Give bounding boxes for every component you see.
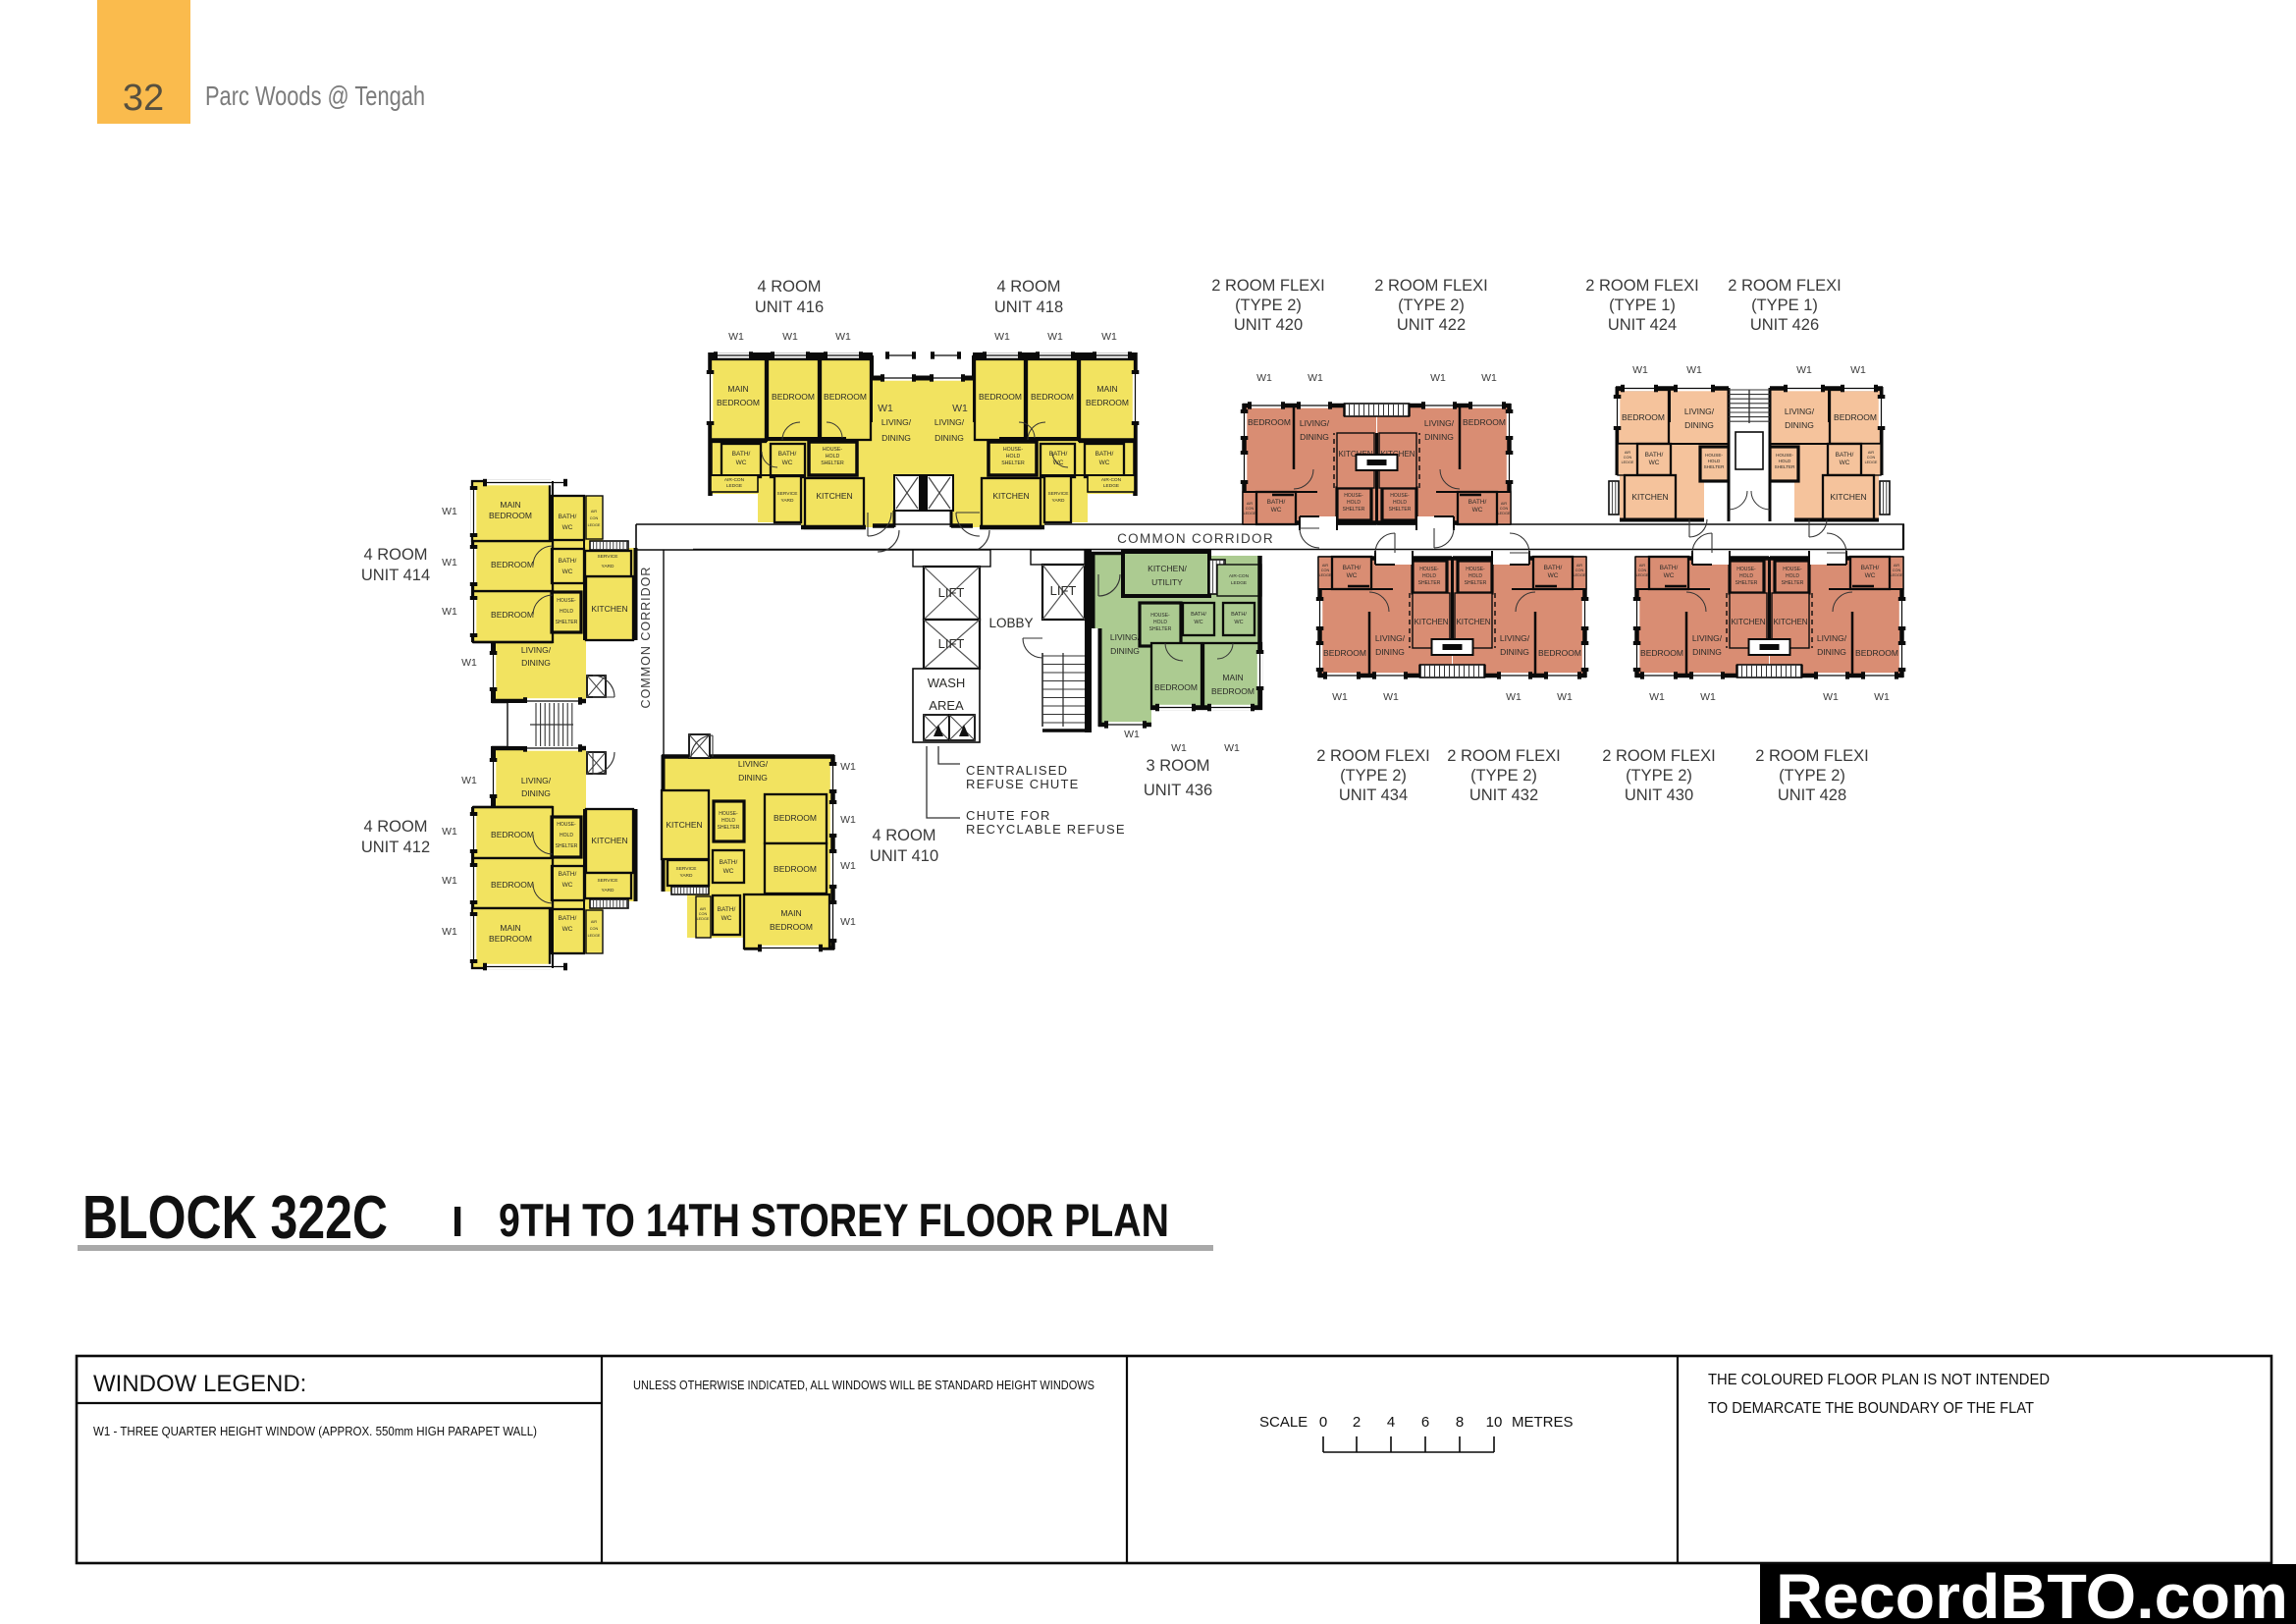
svg-text:LIVING/: LIVING/ (521, 645, 552, 655)
svg-text:W1: W1 (1850, 364, 1866, 376)
svg-text:DINING: DINING (1684, 420, 1714, 430)
svg-text:LEDGE: LEDGE (1891, 573, 1903, 577)
svg-text:W1: W1 (1383, 691, 1399, 703)
svg-text:BEDROOM: BEDROOM (491, 830, 534, 839)
svg-text:YARD: YARD (781, 498, 795, 504)
svg-text:HOLD: HOLD (1393, 500, 1407, 506)
svg-text:LIVING/: LIVING/ (1692, 633, 1723, 643)
svg-text:BEDROOM: BEDROOM (1248, 417, 1291, 427)
svg-text:W1: W1 (1686, 364, 1702, 376)
svg-text:CON: CON (1867, 456, 1876, 460)
svg-text:LEDGE: LEDGE (1622, 460, 1634, 464)
svg-text:SHELTER: SHELTER (1343, 507, 1365, 513)
svg-text:LIVING/: LIVING/ (1785, 406, 1815, 416)
svg-text:BEDROOM: BEDROOM (489, 934, 532, 944)
svg-text:KITCHEN: KITCHEN (816, 491, 852, 501)
svg-text:DINING: DINING (1424, 432, 1454, 442)
svg-text:2 ROOM FLEXI: 2 ROOM FLEXI (1755, 747, 1869, 765)
svg-text:BATH/: BATH/ (1231, 612, 1247, 618)
svg-text:SHELTER: SHELTER (1418, 580, 1441, 586)
svg-text:DINING: DINING (1110, 646, 1140, 656)
svg-text:YARD: YARD (680, 873, 694, 879)
svg-text:I: I (452, 1198, 463, 1246)
svg-text:LEDGE: LEDGE (697, 917, 710, 921)
svg-text:BATH/: BATH/ (559, 915, 577, 922)
svg-text:LEDGE: LEDGE (1865, 460, 1878, 464)
svg-text:2 ROOM FLEXI: 2 ROOM FLEXI (1316, 747, 1430, 765)
svg-text:KITCHEN: KITCHEN (1631, 492, 1668, 502)
svg-text:W1: W1 (1506, 691, 1522, 703)
svg-text:BEDROOM: BEDROOM (1855, 648, 1898, 658)
svg-text:SERVICE: SERVICE (1048, 491, 1069, 497)
svg-text:BEDROOM: BEDROOM (1834, 412, 1877, 422)
svg-text:Parc Woods @ Tengah: Parc Woods @ Tengah (205, 81, 425, 111)
svg-text:KITCHEN: KITCHEN (1773, 618, 1807, 626)
svg-text:4 ROOM: 4 ROOM (363, 818, 427, 836)
svg-text:CENTRALISED: CENTRALISED (966, 763, 1068, 778)
svg-text:W1: W1 (835, 331, 851, 343)
svg-text:YARD: YARD (602, 888, 615, 893)
svg-text:W1: W1 (840, 761, 856, 773)
svg-text:LEDGE: LEDGE (588, 523, 601, 527)
svg-text:CON: CON (1575, 568, 1584, 572)
svg-text:HOLD: HOLD (1786, 573, 1799, 579)
svg-text:8: 8 (1456, 1414, 1464, 1431)
svg-text:BATH/: BATH/ (1836, 452, 1854, 459)
svg-text:UNIT 414: UNIT 414 (361, 567, 430, 584)
svg-text:HOLD: HOLD (826, 454, 840, 460)
svg-text:HOUSE-: HOUSE- (1736, 567, 1756, 572)
svg-text:CON: CON (1246, 507, 1255, 511)
svg-text:W1: W1 (1481, 372, 1497, 384)
svg-text:WC: WC (1234, 620, 1243, 625)
svg-text:4 ROOM: 4 ROOM (996, 278, 1060, 296)
svg-text:HOUSE-: HOUSE- (1390, 493, 1410, 499)
svg-text:UNIT 430: UNIT 430 (1625, 786, 1693, 804)
svg-text:AIR: AIR (591, 920, 598, 924)
svg-text:BATH/: BATH/ (559, 558, 577, 565)
svg-text:WINDOW LEGEND:: WINDOW LEGEND: (93, 1371, 306, 1397)
svg-text:(TYPE 2): (TYPE 2) (1340, 767, 1407, 785)
svg-text:KITCHEN: KITCHEN (1456, 618, 1490, 626)
svg-text:LEDGE: LEDGE (1574, 573, 1586, 577)
svg-text:BATH/: BATH/ (1095, 451, 1114, 458)
svg-text:WC: WC (1840, 460, 1850, 466)
svg-text:LEDGE: LEDGE (588, 934, 601, 938)
svg-text:LEDGE: LEDGE (1498, 512, 1511, 515)
svg-text:AIR: AIR (1868, 451, 1875, 455)
svg-text:BATH/: BATH/ (559, 871, 577, 878)
svg-text:LIVING/: LIVING/ (1424, 418, 1455, 428)
svg-text:W1: W1 (1256, 372, 1272, 384)
svg-text:W1: W1 (840, 860, 856, 872)
svg-text:CON: CON (699, 912, 708, 916)
svg-text:SERVICE: SERVICE (598, 554, 618, 560)
svg-text:DINING: DINING (521, 658, 551, 668)
svg-text:UNIT 420: UNIT 420 (1234, 316, 1303, 334)
svg-text:LEDGE: LEDGE (1244, 512, 1256, 515)
svg-text:SHELTER: SHELTER (1001, 460, 1025, 466)
svg-text:2 ROOM FLEXI: 2 ROOM FLEXI (1374, 277, 1488, 295)
svg-text:HOLD: HOLD (1422, 573, 1436, 579)
svg-text:SHELTER: SHELTER (1704, 464, 1726, 469)
svg-text:BATH/: BATH/ (720, 859, 738, 866)
svg-text:WC: WC (1099, 460, 1110, 466)
svg-text:DINING: DINING (1817, 647, 1846, 657)
svg-text:(TYPE 1): (TYPE 1) (1751, 297, 1818, 314)
svg-text:W1: W1 (1823, 691, 1839, 703)
svg-text:UNIT 422: UNIT 422 (1397, 316, 1466, 334)
svg-text:BEDROOM: BEDROOM (774, 864, 817, 874)
svg-text:HOLD: HOLD (1708, 459, 1721, 463)
svg-text:BATH/: BATH/ (1544, 565, 1563, 571)
svg-text:BEDROOM: BEDROOM (824, 392, 867, 402)
svg-text:LIFT: LIFT (1050, 583, 1077, 598)
svg-text:WC: WC (782, 460, 793, 466)
svg-text:BATH/: BATH/ (778, 451, 797, 458)
svg-text:W1: W1 (1557, 691, 1573, 703)
svg-text:HOUSE-: HOUSE- (1705, 453, 1723, 458)
svg-text:BLOCK 322C: BLOCK 322C (82, 1184, 388, 1252)
svg-text:W1: W1 (1874, 691, 1890, 703)
svg-text:METRES: METRES (1512, 1414, 1574, 1431)
svg-text:W1: W1 (442, 875, 457, 887)
svg-text:UNIT 410: UNIT 410 (870, 847, 938, 865)
svg-text:W1: W1 (442, 557, 457, 568)
svg-text:W1: W1 (442, 926, 457, 938)
svg-text:DINING: DINING (521, 788, 551, 798)
svg-text:HOLD: HOLD (560, 833, 573, 839)
svg-text:BEDROOM: BEDROOM (1086, 398, 1129, 407)
svg-text:LEDGE: LEDGE (1636, 573, 1649, 577)
svg-text:AIR-CON: AIR-CON (1101, 477, 1122, 483)
svg-text:W1: W1 (461, 657, 477, 669)
svg-text:BATH/: BATH/ (1267, 499, 1286, 506)
svg-text:W1: W1 (461, 775, 477, 786)
svg-text:MAIN: MAIN (500, 923, 520, 933)
svg-text:BATH/: BATH/ (1191, 612, 1206, 618)
svg-text:DINING: DINING (881, 433, 911, 443)
svg-text:AIR-CON: AIR-CON (1229, 573, 1250, 579)
svg-text:SHELTER: SHELTER (1735, 580, 1758, 586)
svg-text:LEDGE: LEDGE (1319, 573, 1332, 577)
svg-text:WC: WC (562, 882, 573, 889)
svg-text:SHELTER: SHELTER (718, 825, 740, 831)
svg-text:W1: W1 (442, 506, 457, 517)
svg-text:HOUSE-: HOUSE- (1150, 613, 1170, 619)
svg-text:W1: W1 (1332, 691, 1348, 703)
svg-text:BEDROOM: BEDROOM (1622, 412, 1665, 422)
svg-text:TO DEMARCATE THE BOUNDARY OF T: TO DEMARCATE THE BOUNDARY OF THE FLAT (1708, 1400, 2034, 1417)
svg-text:UNLESS OTHERWISE INDICATED, A: UNLESS OTHERWISE INDICATED, ALL WINDOWS … (633, 1379, 1095, 1392)
svg-text:AIR: AIR (1639, 564, 1646, 568)
svg-text:WC: WC (562, 568, 573, 575)
svg-text:YARD: YARD (1052, 498, 1066, 504)
svg-text:COMMON CORRIDOR: COMMON CORRIDOR (1117, 531, 1274, 546)
svg-text:HOLD: HOLD (1739, 573, 1753, 579)
svg-text:UNIT 436: UNIT 436 (1144, 782, 1212, 799)
svg-text:BATH/: BATH/ (1645, 452, 1664, 459)
svg-text:WC: WC (562, 926, 573, 933)
svg-text:WC: WC (1649, 460, 1660, 466)
svg-text:W1: W1 (878, 403, 893, 414)
svg-text:LIVING/: LIVING/ (1375, 633, 1406, 643)
svg-text:2 ROOM FLEXI: 2 ROOM FLEXI (1447, 747, 1561, 765)
svg-text:LIVING/: LIVING/ (1500, 633, 1530, 643)
svg-text:LOBBY: LOBBY (988, 616, 1033, 630)
svg-text:4 ROOM: 4 ROOM (363, 546, 427, 564)
svg-text:6: 6 (1421, 1414, 1429, 1431)
svg-text:W1: W1 (1796, 364, 1812, 376)
svg-text:UNIT 424: UNIT 424 (1608, 316, 1677, 334)
svg-text:LEDGE: LEDGE (1103, 483, 1119, 489)
svg-text:SHELTER: SHELTER (1149, 626, 1172, 632)
svg-text:4 ROOM: 4 ROOM (757, 278, 821, 296)
svg-text:4 ROOM: 4 ROOM (872, 827, 935, 844)
svg-text:HOUSE-: HOUSE- (557, 598, 576, 604)
svg-text:MAIN: MAIN (727, 384, 748, 394)
svg-text:HOUSE-: HOUSE- (1466, 567, 1485, 572)
svg-text:RecordBTO.com: RecordBTO.com (1776, 1561, 2288, 1624)
svg-text:REFUSE CHUTE: REFUSE CHUTE (966, 777, 1080, 791)
svg-text:W1: W1 (840, 814, 856, 826)
svg-text:BEDROOM: BEDROOM (1154, 682, 1198, 692)
svg-text:RECYCLABLE REFUSE: RECYCLABLE REFUSE (966, 822, 1126, 837)
svg-text:HOUSE-: HOUSE- (719, 811, 738, 817)
svg-text:AIR: AIR (1501, 502, 1508, 506)
svg-text:HOLD: HOLD (721, 818, 735, 824)
svg-text:WC: WC (1194, 620, 1202, 625)
svg-text:W1: W1 (1101, 331, 1117, 343)
svg-text:HOUSE-: HOUSE- (1344, 493, 1363, 499)
svg-text:UNIT 416: UNIT 416 (755, 298, 824, 316)
svg-text:KITCHEN/: KITCHEN/ (1148, 564, 1187, 573)
svg-text:WC: WC (736, 460, 747, 466)
svg-text:2 ROOM FLEXI: 2 ROOM FLEXI (1728, 277, 1842, 295)
svg-text:DINING: DINING (1785, 420, 1814, 430)
svg-text:AIR: AIR (1247, 502, 1254, 506)
svg-text:SHELTER: SHELTER (1465, 580, 1487, 586)
svg-text:(TYPE 2): (TYPE 2) (1626, 767, 1692, 785)
svg-text:BEDROOM: BEDROOM (770, 922, 813, 932)
svg-text:DINING: DINING (934, 433, 964, 443)
svg-text:LEDGE: LEDGE (1231, 580, 1247, 586)
svg-text:LIFT: LIFT (938, 585, 965, 600)
svg-text:4: 4 (1387, 1414, 1395, 1431)
svg-text:BATH/: BATH/ (1861, 565, 1880, 571)
svg-text:SERVICE: SERVICE (676, 866, 697, 872)
svg-text:W1: W1 (1700, 691, 1716, 703)
svg-text:BEDROOM: BEDROOM (491, 560, 534, 569)
svg-text:HOLD: HOLD (1779, 459, 1791, 463)
svg-text:WC: WC (1347, 572, 1358, 579)
svg-text:UTILITY: UTILITY (1151, 577, 1183, 587)
svg-text:3 ROOM: 3 ROOM (1146, 757, 1209, 775)
svg-text:BATH/: BATH/ (718, 906, 736, 913)
svg-text:W1: W1 (1430, 372, 1446, 384)
svg-text:(TYPE 2): (TYPE 2) (1470, 767, 1537, 785)
svg-text:LIVING/: LIVING/ (934, 417, 965, 427)
svg-text:BEDROOM: BEDROOM (1031, 392, 1074, 402)
svg-text:W1: W1 (1047, 331, 1063, 343)
svg-text:WC: WC (1664, 572, 1675, 579)
svg-text:COMMON CORRIDOR: COMMON CORRIDOR (639, 567, 653, 709)
svg-text:BEDROOM: BEDROOM (1323, 648, 1366, 658)
svg-text:W1: W1 (728, 331, 744, 343)
svg-text:HOUSE-: HOUSE- (557, 822, 576, 828)
svg-text:HOLD: HOLD (560, 609, 573, 615)
svg-text:WC: WC (1271, 507, 1282, 514)
svg-text:BEDROOM: BEDROOM (1463, 417, 1506, 427)
svg-text:WC: WC (1548, 572, 1559, 579)
svg-text:YARD: YARD (602, 564, 615, 569)
svg-text:AIR: AIR (1322, 564, 1329, 568)
svg-text:KITCHEN: KITCHEN (666, 820, 702, 830)
svg-text:THE COLOURED FLOOR PLAN IS NOT: THE COLOURED FLOOR PLAN IS NOT INTENDED (1708, 1372, 2050, 1388)
svg-text:LEDGE: LEDGE (726, 483, 742, 489)
svg-text:BEDROOM: BEDROOM (1640, 648, 1683, 658)
svg-text:CON: CON (590, 516, 599, 520)
svg-text:KITCHEN: KITCHEN (1830, 492, 1866, 502)
svg-text:WC: WC (723, 868, 734, 875)
svg-text:W1: W1 (442, 826, 457, 838)
svg-text:AIR: AIR (1894, 564, 1900, 568)
svg-text:HOUSE-: HOUSE- (1003, 447, 1023, 453)
svg-text:AIR: AIR (1576, 564, 1583, 568)
svg-text:WASH: WASH (928, 676, 966, 690)
svg-text:WC: WC (562, 524, 573, 531)
svg-text:BEDROOM: BEDROOM (1211, 686, 1255, 696)
svg-text:W1: W1 (1171, 742, 1187, 754)
svg-text:2 ROOM FLEXI: 2 ROOM FLEXI (1585, 277, 1699, 295)
svg-text:DINING: DINING (1500, 647, 1529, 657)
svg-text:SCALE: SCALE (1259, 1414, 1308, 1431)
svg-text:BATH/: BATH/ (1343, 565, 1362, 571)
svg-text:MAIN: MAIN (780, 908, 801, 918)
svg-text:LIVING/: LIVING/ (1817, 633, 1847, 643)
svg-text:WC: WC (721, 915, 732, 922)
svg-text:HOUSE-: HOUSE- (1776, 453, 1793, 458)
svg-text:LIVING/: LIVING/ (1684, 406, 1715, 416)
svg-text:(TYPE 2): (TYPE 2) (1779, 767, 1845, 785)
svg-text:MAIN: MAIN (500, 500, 520, 510)
svg-text:CON: CON (1321, 568, 1330, 572)
svg-text:2 ROOM FLEXI: 2 ROOM FLEXI (1602, 747, 1716, 765)
svg-text:10: 10 (1486, 1414, 1503, 1431)
svg-text:KITCHEN: KITCHEN (992, 491, 1029, 501)
svg-text:(TYPE 2): (TYPE 2) (1398, 297, 1465, 314)
svg-text:W1: W1 (1224, 742, 1240, 754)
svg-text:W1: W1 (1308, 372, 1323, 384)
svg-text:KITCHEN: KITCHEN (591, 836, 627, 845)
svg-text:KITCHEN: KITCHEN (1414, 618, 1448, 626)
svg-text:BEDROOM: BEDROOM (772, 392, 815, 402)
svg-text:CON: CON (590, 927, 599, 931)
svg-text:BEDROOM: BEDROOM (1538, 648, 1581, 658)
svg-text:W1: W1 (1124, 729, 1140, 740)
svg-text:CHUTE FOR: CHUTE FOR (966, 808, 1051, 823)
svg-text:BATH/: BATH/ (1660, 565, 1679, 571)
svg-text:W1: W1 (782, 331, 798, 343)
svg-text:UNIT 434: UNIT 434 (1339, 786, 1408, 804)
svg-text:W1 - THREE QUARTER HEIGHT WI: W1 - THREE QUARTER HEIGHT WINDOW (APPROX… (93, 1424, 537, 1438)
svg-text:UNIT 412: UNIT 412 (361, 839, 430, 856)
svg-text:DINING: DINING (1375, 647, 1405, 657)
svg-text:2: 2 (1353, 1414, 1361, 1431)
svg-text:AREA: AREA (929, 698, 964, 713)
svg-text:SHELTER: SHELTER (1389, 507, 1412, 513)
svg-text:BATH/: BATH/ (1049, 451, 1068, 458)
svg-text:DINING: DINING (1692, 647, 1722, 657)
svg-text:9TH TO 14TH STOREY FLOOR PLAN: 9TH TO 14TH STOREY FLOOR PLAN (499, 1194, 1169, 1246)
svg-text:BATH/: BATH/ (559, 514, 577, 520)
svg-text:AIR: AIR (700, 907, 707, 911)
svg-text:BATH/: BATH/ (1468, 499, 1487, 506)
svg-text:DINING: DINING (1300, 432, 1329, 442)
svg-text:2 ROOM FLEXI: 2 ROOM FLEXI (1211, 277, 1325, 295)
svg-text:BEDROOM: BEDROOM (774, 813, 817, 823)
svg-text:WC: WC (1472, 507, 1483, 514)
svg-text:SERVICE: SERVICE (777, 491, 798, 497)
svg-text:KITCHEN: KITCHEN (591, 604, 627, 614)
svg-text:KITCHEN: KITCHEN (1731, 618, 1765, 626)
svg-text:BEDROOM: BEDROOM (979, 392, 1022, 402)
svg-text:UNIT 426: UNIT 426 (1750, 316, 1819, 334)
svg-text:LIFT: LIFT (938, 636, 965, 651)
svg-text:AIR: AIR (1625, 451, 1631, 455)
svg-text:MAIN: MAIN (1096, 384, 1117, 394)
svg-text:SHELTER: SHELTER (821, 460, 844, 466)
svg-text:BEDROOM: BEDROOM (717, 398, 760, 407)
svg-text:HOUSE-: HOUSE- (823, 447, 842, 453)
svg-text:CON: CON (1893, 568, 1901, 572)
svg-text:HOLD: HOLD (1468, 573, 1482, 579)
svg-text:SHELTER: SHELTER (556, 620, 578, 625)
svg-text:0: 0 (1319, 1414, 1327, 1431)
svg-text:SHELTER: SHELTER (1782, 580, 1804, 586)
svg-text:BATH/: BATH/ (732, 451, 751, 458)
svg-text:W1: W1 (994, 331, 1010, 343)
svg-text:AIR: AIR (591, 510, 598, 514)
svg-text:W1: W1 (952, 403, 968, 414)
svg-text:MAIN: MAIN (1222, 673, 1243, 682)
svg-text:AIR-CON: AIR-CON (724, 477, 745, 483)
svg-text:BEDROOM: BEDROOM (491, 610, 534, 620)
svg-text:LIVING/: LIVING/ (521, 776, 552, 785)
svg-text:UNIT 432: UNIT 432 (1469, 786, 1538, 804)
svg-text:HOLD: HOLD (1006, 454, 1021, 460)
svg-text:W1: W1 (1649, 691, 1665, 703)
svg-text:LIVING/: LIVING/ (1300, 418, 1330, 428)
svg-text:CON: CON (1624, 456, 1632, 460)
svg-text:(TYPE 2): (TYPE 2) (1235, 297, 1302, 314)
svg-text:CON: CON (1500, 507, 1509, 511)
svg-text:UNIT 428: UNIT 428 (1778, 786, 1846, 804)
svg-text:W1: W1 (840, 916, 856, 928)
svg-text:32: 32 (123, 78, 164, 119)
svg-text:HOUSE-: HOUSE- (1783, 567, 1802, 572)
svg-text:HOLD: HOLD (1153, 620, 1167, 625)
svg-text:BEDROOM: BEDROOM (491, 880, 534, 890)
svg-text:WC: WC (1865, 572, 1876, 579)
svg-text:SERVICE: SERVICE (598, 878, 618, 884)
svg-text:SHELTER: SHELTER (556, 843, 578, 849)
svg-text:LIVING/: LIVING/ (738, 759, 769, 769)
svg-text:HOUSE-: HOUSE- (1419, 567, 1439, 572)
svg-text:W1: W1 (442, 606, 457, 618)
svg-text:CON: CON (1638, 568, 1647, 572)
svg-text:UNIT 418: UNIT 418 (994, 298, 1063, 316)
